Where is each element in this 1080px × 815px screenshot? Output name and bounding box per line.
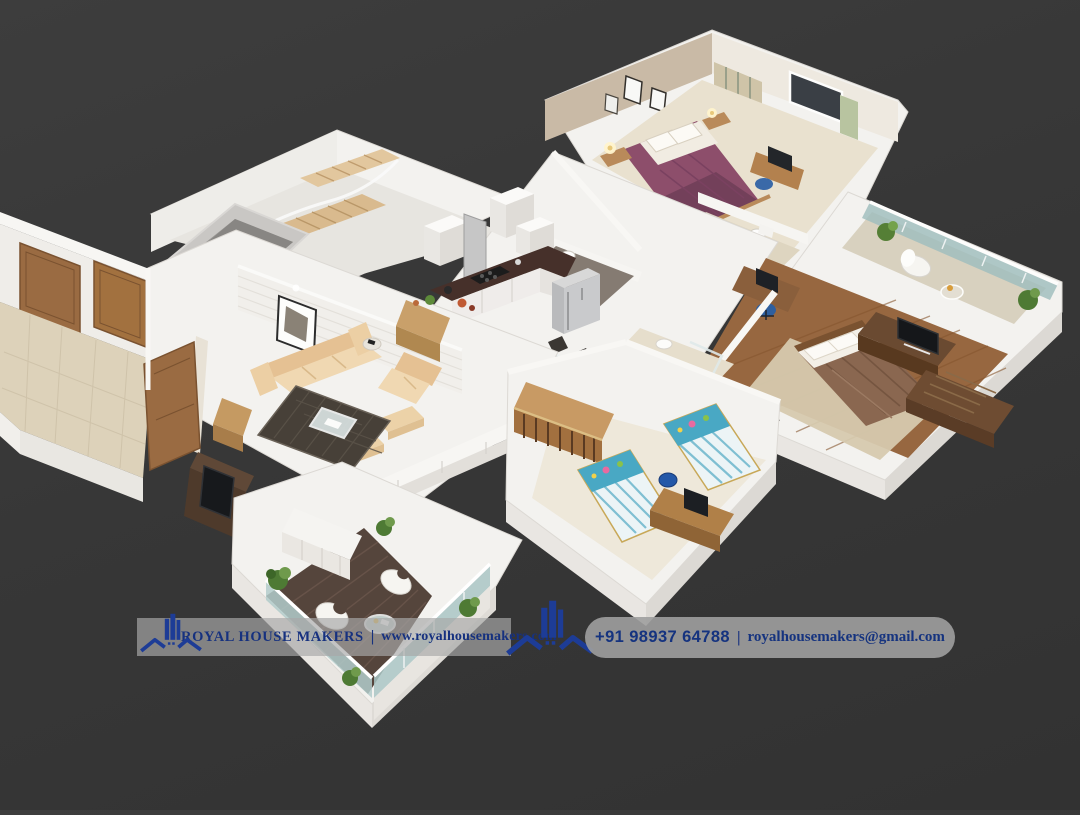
- email-address[interactable]: royalhousemakers@gmail.com: [748, 629, 945, 646]
- wall-picture-1: [624, 76, 642, 104]
- entrance-hall: [0, 212, 152, 502]
- right-separator: |: [737, 629, 741, 647]
- floor-plan-render: [0, 0, 1080, 810]
- terrace: [232, 462, 522, 728]
- company-logo-icon-center: [506, 594, 594, 662]
- wall-picture-3: [605, 94, 618, 114]
- floor-plan-stage: [0, 0, 1080, 810]
- left-separator: |: [371, 628, 375, 646]
- company-logo-icon: [140, 604, 202, 662]
- company-name: ROYAL HOUSE MAKERS: [181, 629, 364, 646]
- kids-chair: [659, 473, 677, 487]
- footer-banner-right: +91 98937 64788 | royalhousemakers@gmail…: [585, 617, 955, 658]
- bedroom1-curtain: [840, 95, 858, 140]
- phone-number[interactable]: +91 98937 64788: [595, 628, 730, 647]
